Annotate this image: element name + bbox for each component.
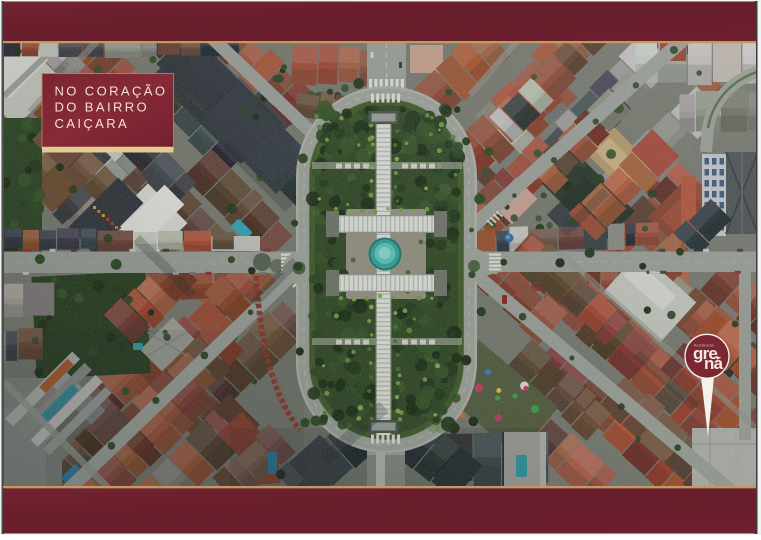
svg-text:CAIÇARA: CAIÇARA: [55, 116, 130, 131]
svg-text:NO CORAÇÃO: NO CORAÇÃO: [55, 84, 168, 99]
svg-text:ná: ná: [704, 354, 724, 373]
svg-text:DO BAIRRO: DO BAIRRO: [55, 100, 150, 115]
